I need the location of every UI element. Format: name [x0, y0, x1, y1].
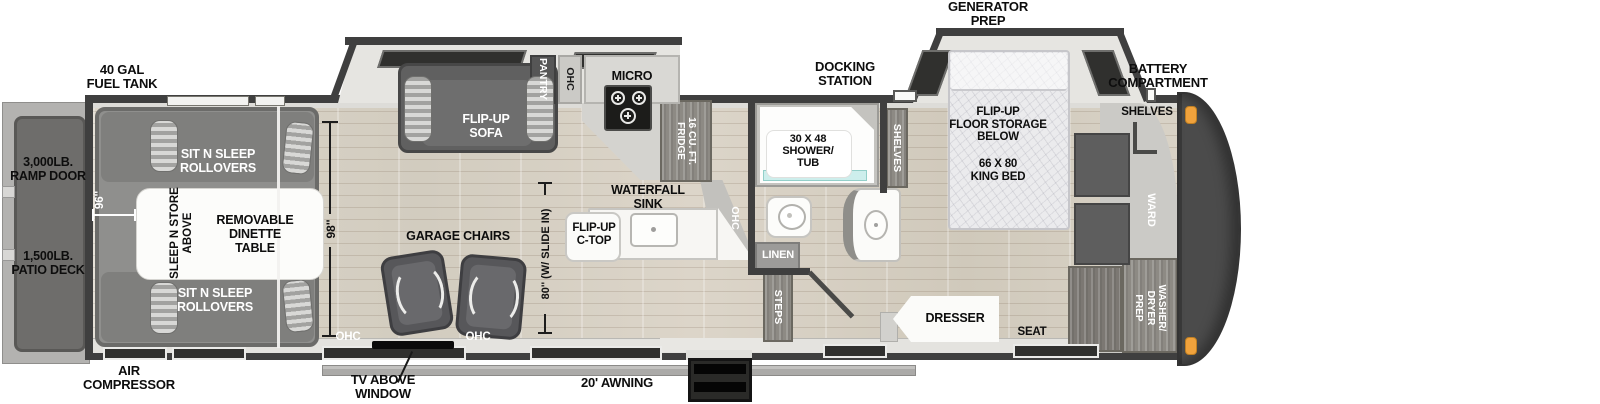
garage-bottom-window: [172, 347, 246, 360]
tv-above-window: [372, 341, 454, 349]
front-shelves-label: SHELVES: [1116, 106, 1178, 119]
cap-marker-light: [1185, 337, 1197, 355]
ramp-door-label: 3,000LB.RAMP DOOR: [0, 156, 96, 184]
docking-station-label: DOCKINGSTATION: [785, 60, 905, 89]
waterfall-sink-label: WATERFALLSINK: [598, 184, 698, 212]
air-compressor-label: AIRCOMPRESSOR: [69, 364, 189, 393]
awning-label: 20' AWNING: [557, 376, 677, 390]
dresser-label: DRESSER: [910, 312, 1000, 326]
garage-top-window: [167, 96, 249, 106]
washer-dryer-label: WASHER/DRYERPREP: [1125, 272, 1175, 344]
front-shelf-divider: [1133, 150, 1157, 154]
pantry-label: PANTRY: [530, 41, 556, 117]
vanity-drain: [874, 223, 878, 227]
garage-chair: [455, 253, 528, 340]
steps-label: STEPS: [765, 277, 791, 337]
living-dim-tick: [322, 121, 338, 123]
shower-label: 30 X 48SHOWER/TUB: [766, 133, 850, 169]
sink-drain: [651, 227, 656, 232]
flip-up-ctop-label: FLIP-UPC-TOP: [565, 222, 623, 247]
slide-dim-tick: [538, 182, 552, 184]
fuel-tank-label: 40 GALFUEL TANK: [62, 63, 182, 92]
garage-top-window: [255, 96, 285, 106]
stove-burner: [620, 108, 636, 124]
patio-deck-label: 1,500LB.PATIO DECK: [0, 250, 96, 278]
living-dim-line: [329, 122, 331, 214]
stove-burner: [611, 91, 625, 105]
garage-width-dim-tick: [134, 209, 136, 221]
king-bed-pillows: [951, 53, 1067, 91]
bench-cushion: [281, 121, 314, 176]
garage-bottom-window: [103, 347, 167, 360]
wardrobe-block: [1074, 203, 1130, 265]
bed-slide-top-wall: [936, 28, 1124, 36]
linen-label: LINEN: [753, 249, 803, 261]
living-dim-label: 98'': [319, 205, 345, 253]
ward-label: WARD: [1138, 180, 1164, 240]
sit-n-sleep-bottom-label: SIT N SLEEPROLLOVERS: [155, 287, 275, 315]
sofa-slide-top-wall: [345, 37, 682, 45]
tv-above-window-label: TV ABOVEWINDOW: [323, 373, 443, 402]
washer-dryer-cabinet: [1068, 266, 1122, 352]
floorplan-canvas: 3,000LB.RAMP DOOR 1,500LB.PATIO DECK SLE…: [0, 0, 1600, 404]
living-dim-line: [329, 247, 331, 336]
toilet-bowl: [778, 204, 806, 230]
battery-compartment-label: BATTERYCOMPARTMENT: [1092, 62, 1224, 91]
flip-up-sofa-label: FLIP-UPSOFA: [426, 113, 546, 141]
garage-width-dim-label: 96'': [83, 175, 119, 225]
patio-deck-surface: [14, 116, 86, 352]
fridge-label: 16 CU. FT.FRIDGE: [673, 106, 699, 176]
generator-prep-label: GENERATORPREP: [928, 0, 1048, 29]
garage-chair: [379, 248, 455, 337]
bath-shelves-label: SHELVES: [884, 118, 910, 178]
seat-label: SEAT: [1006, 326, 1058, 339]
micro-label: MICRO: [584, 70, 680, 84]
dinette-label: REMOVABLEDINETTETABLE: [205, 214, 305, 255]
cap-marker-light: [1185, 106, 1197, 124]
garage-chairs-label: GARAGE CHAIRS: [398, 230, 518, 244]
front-cap: [1177, 92, 1241, 366]
slide-dim-line: [544, 314, 546, 334]
king-bed-label: 66 X 80KING BED: [948, 158, 1048, 183]
sit-n-sleep-top-label: SIT N SLEEPROLLOVERS: [158, 148, 278, 176]
docking-station-hatch: [893, 90, 917, 102]
stove-burner: [632, 91, 646, 105]
kitchen-window: [530, 346, 662, 360]
ramp-hinge: [2, 186, 15, 198]
ohc-right-label: OHC: [450, 331, 506, 344]
ohc-left-label: OHC: [320, 331, 376, 344]
bench-cushion: [281, 279, 314, 334]
entry-step-tread: [694, 364, 746, 374]
bath-bottom-wall: [748, 268, 810, 275]
slide-dim-tick: [538, 332, 552, 334]
toilet-drain: [787, 213, 792, 218]
ohc-island-label: OHC: [722, 193, 748, 243]
entry-step-tread: [694, 382, 746, 392]
floor-storage-label: FLIP-UPFLOOR STORAGEBELOW: [938, 106, 1058, 144]
slide-dim-label: 80'' (W/ SLIDE IN): [537, 192, 555, 316]
ohc-upper-label: OHC: [557, 54, 583, 104]
entry-side-window: [823, 344, 887, 358]
bedroom-window: [1013, 344, 1099, 358]
wardrobe-block: [1074, 133, 1130, 197]
sleep-n-store-label: SLEEP N STOREABOVE: [162, 173, 202, 293]
